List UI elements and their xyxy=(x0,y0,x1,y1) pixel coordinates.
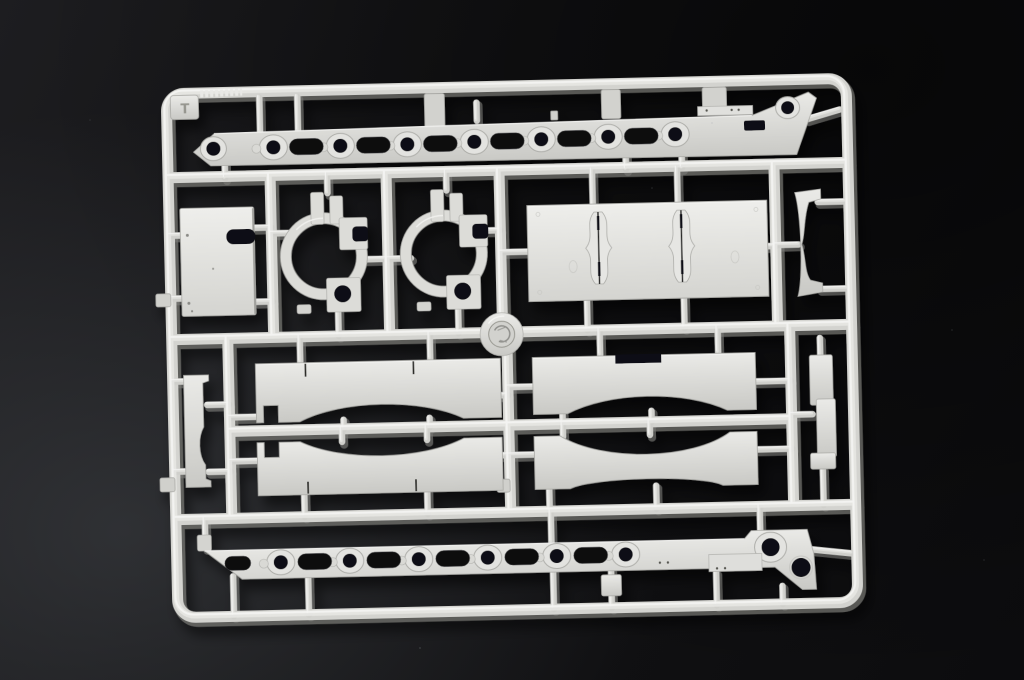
part-fender-lower-left xyxy=(257,437,503,496)
serrated-strip xyxy=(200,92,242,94)
part-hull-side-panel-lower xyxy=(197,521,816,603)
injection-gate-disc xyxy=(480,312,524,356)
part-fender-lower-right xyxy=(534,431,758,489)
sprue-letter: T xyxy=(180,102,189,117)
sprue: T xyxy=(151,76,860,622)
part-round-housing-bracket-1 xyxy=(279,191,370,314)
part-small-block xyxy=(601,575,621,596)
part-round-housing-bracket-2 xyxy=(399,189,490,312)
sprue-photo: T xyxy=(0,0,1024,680)
part-large-plate xyxy=(527,200,769,301)
photo-background: T xyxy=(0,0,1024,680)
part-flat-access-panel xyxy=(180,207,257,317)
part-fender-upper-left xyxy=(255,358,501,423)
part-fender-upper-right xyxy=(532,351,756,414)
